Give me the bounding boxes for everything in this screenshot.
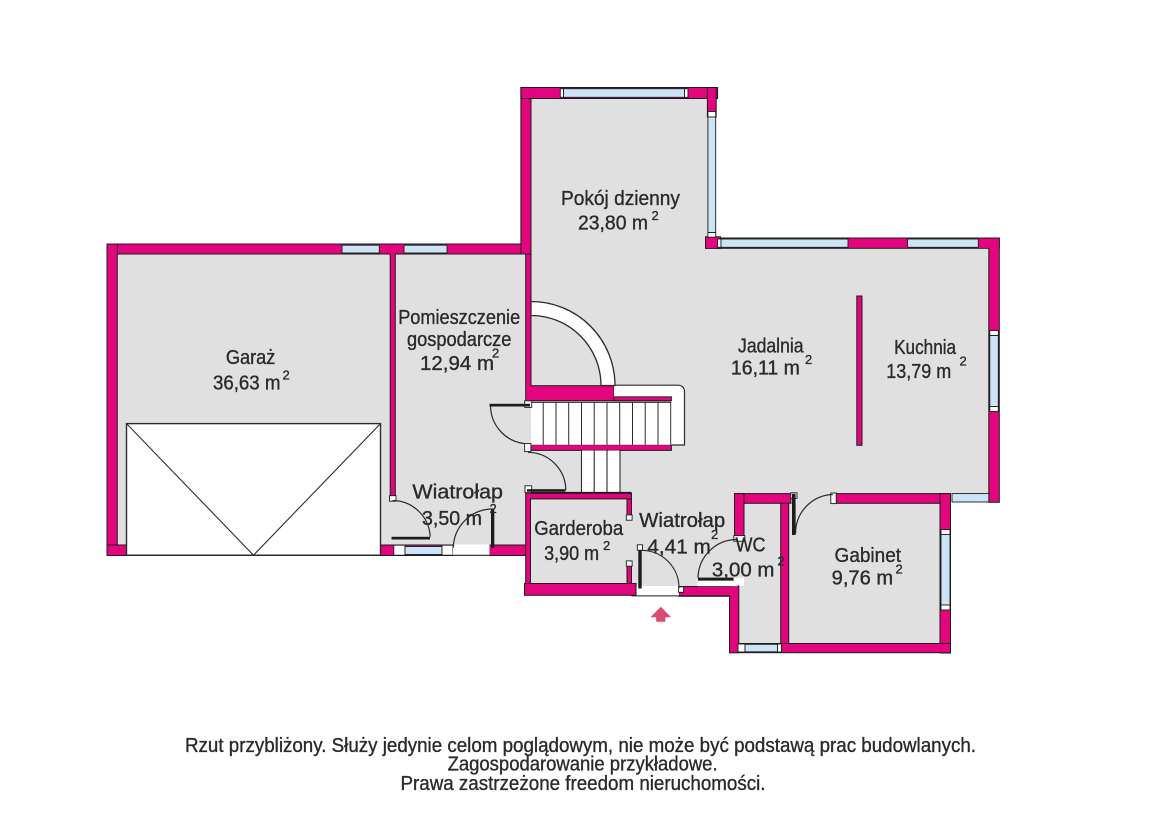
svg-text:Garaż: Garaż <box>226 347 276 369</box>
svg-text:2: 2 <box>711 527 718 542</box>
svg-text:12,94 m: 12,94 m <box>420 353 494 375</box>
svg-text:13,79 m: 13,79 m <box>886 361 951 383</box>
svg-text:3,50 m: 3,50 m <box>422 508 482 530</box>
svg-text:3,90 m: 3,90 m <box>544 543 599 565</box>
svg-text:Gabinet: Gabinet <box>835 545 902 567</box>
svg-text:4,41 m: 4,41 m <box>647 537 711 559</box>
svg-text:2: 2 <box>603 538 610 553</box>
svg-text:9,76 m: 9,76 m <box>832 568 894 590</box>
svg-text:2: 2 <box>283 368 290 383</box>
svg-text:16,11 m: 16,11 m <box>731 358 800 380</box>
svg-text:2: 2 <box>492 346 499 361</box>
svg-text:2: 2 <box>960 354 967 369</box>
svg-text:Jadalnia: Jadalnia <box>738 336 804 358</box>
svg-text:3,00 m: 3,00 m <box>712 560 775 582</box>
svg-text:Garderoba: Garderoba <box>534 518 624 540</box>
svg-text:WC: WC <box>736 535 766 557</box>
svg-text:2: 2 <box>805 352 812 367</box>
svg-text:2: 2 <box>490 501 497 516</box>
svg-text:Prawa zastrzeżone freedom nier: Prawa zastrzeżone freedom nieruchomości. <box>401 773 766 795</box>
svg-text:Pomieszczenie: Pomieszczenie <box>398 307 520 329</box>
svg-text:23,80 m: 23,80 m <box>578 213 648 235</box>
svg-text:2: 2 <box>896 562 903 577</box>
svg-text:Pokój dzienny: Pokój dzienny <box>561 188 680 210</box>
svg-text:36,63 m: 36,63 m <box>213 373 281 395</box>
svg-text:2: 2 <box>652 208 659 223</box>
svg-text:2: 2 <box>778 554 785 569</box>
svg-text:Kuchnia: Kuchnia <box>894 337 957 359</box>
